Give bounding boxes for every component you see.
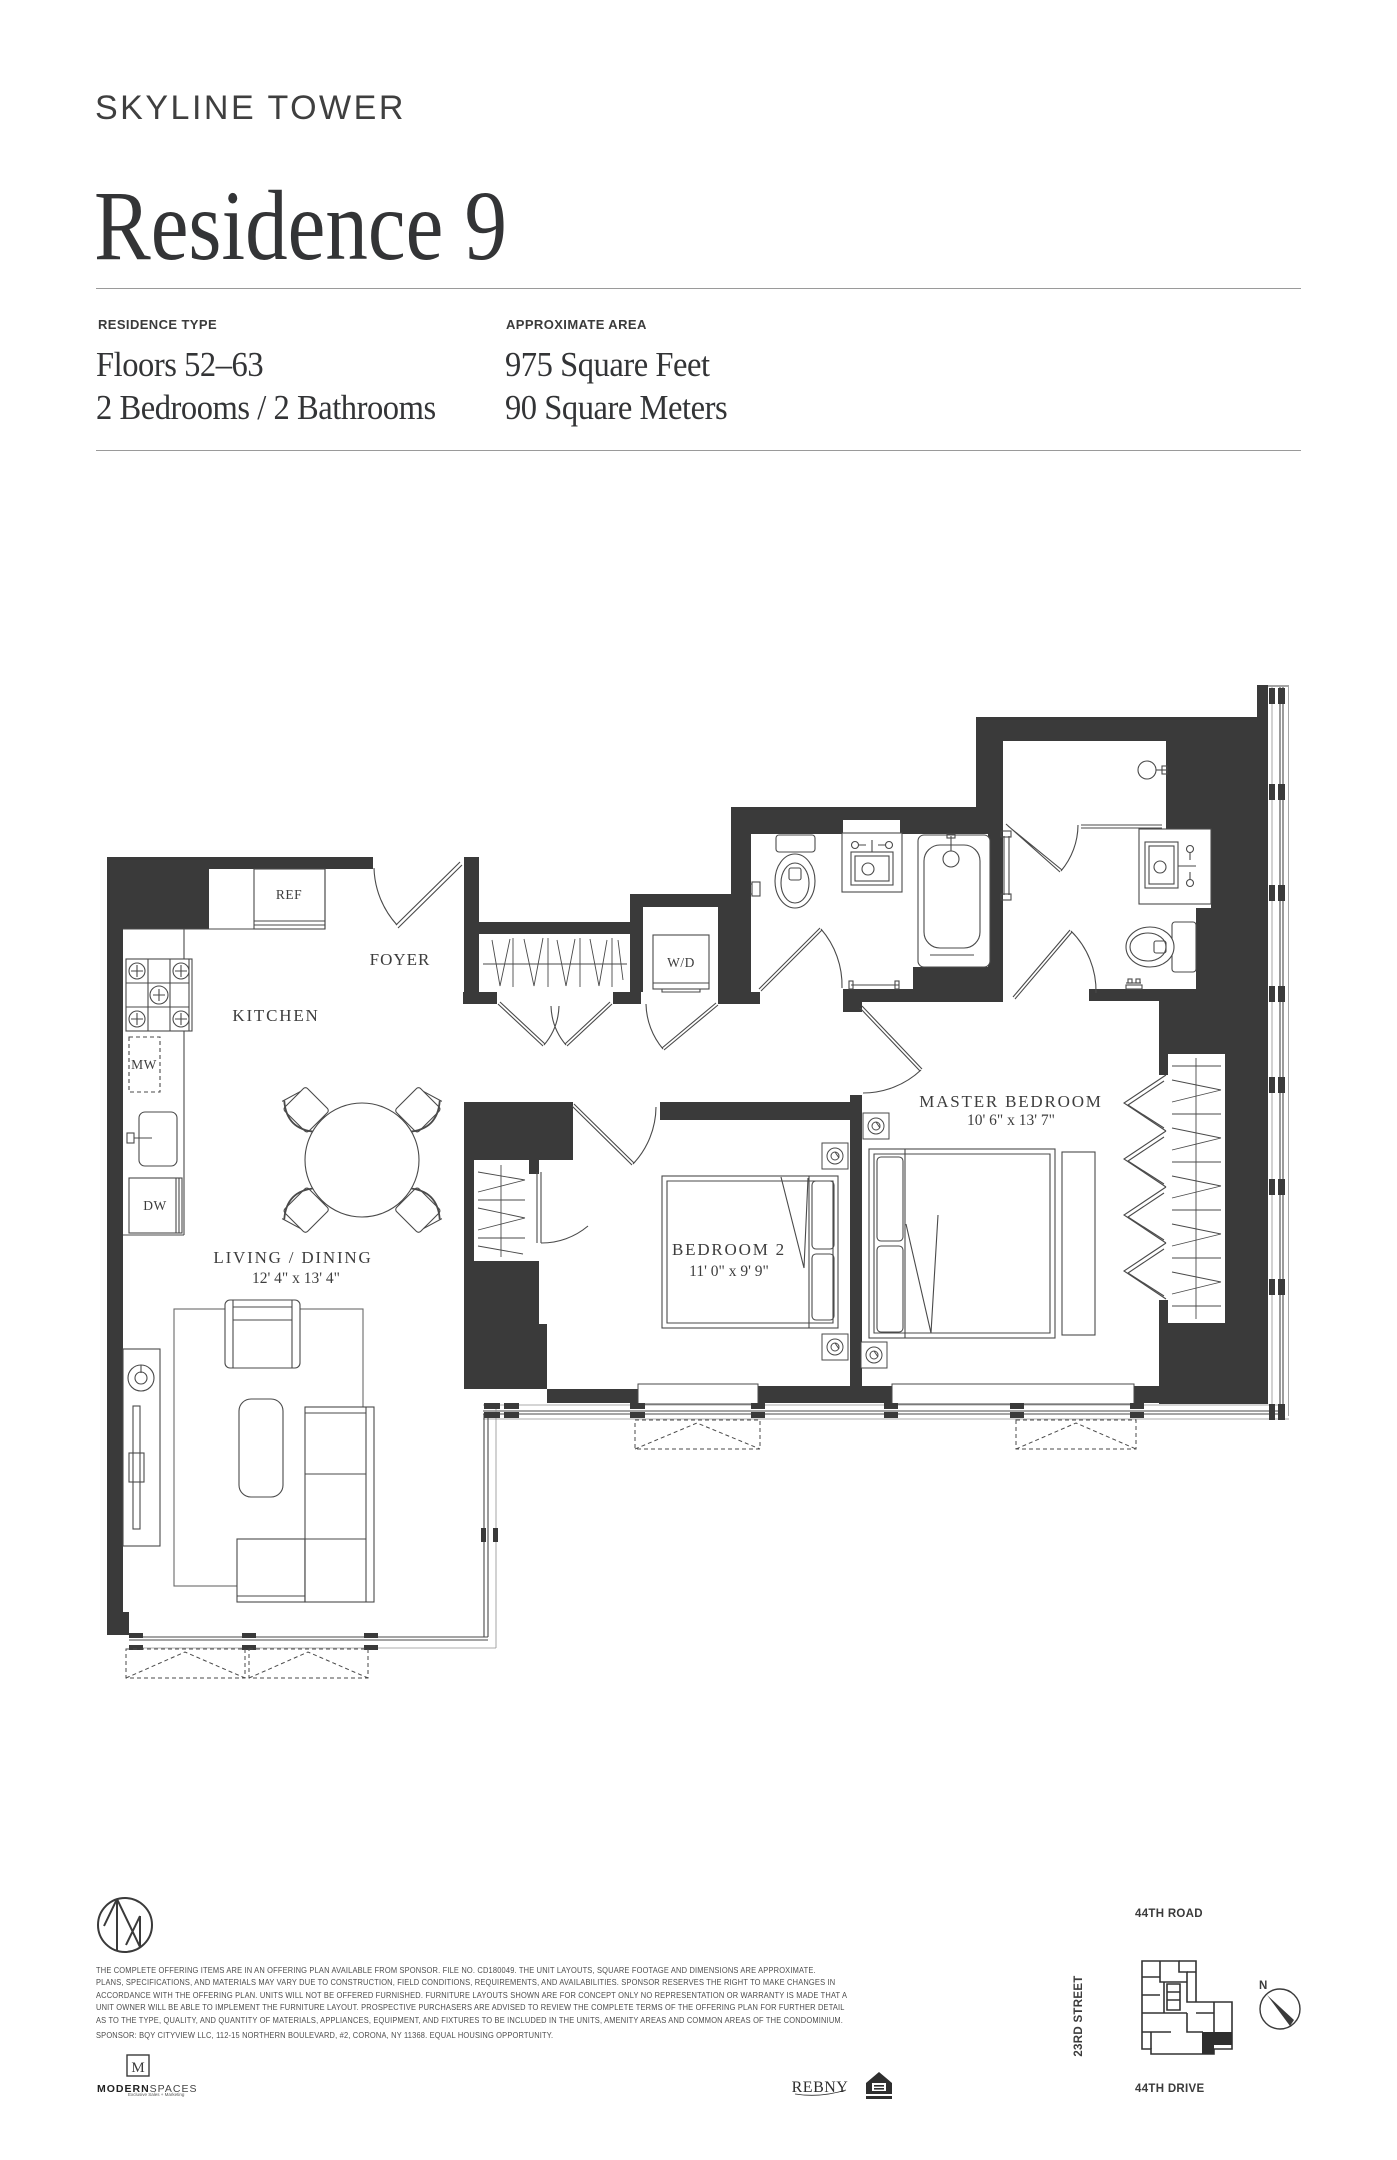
svg-text:BEDROOM 2: BEDROOM 2 [672,1240,786,1259]
svg-text:DW: DW [143,1198,167,1213]
svg-text:MW: MW [131,1057,157,1072]
svg-text:12' 4" x 13' 4": 12' 4" x 13' 4" [252,1270,340,1287]
svg-text:FOYER: FOYER [370,950,431,969]
svg-text:23RD STREET: 23RD STREET [1073,1975,1085,2056]
svg-text:LIVING / DINING: LIVING / DINING [213,1248,372,1267]
svg-text:MASTER BEDROOM: MASTER BEDROOM [919,1092,1102,1111]
svg-text:REBNY: REBNY [792,2079,849,2096]
svg-text:Exclusive Sales + Marketing: Exclusive Sales + Marketing [128,2092,185,2097]
svg-text:KITCHEN: KITCHEN [232,1006,319,1025]
svg-text:M: M [131,2060,144,2076]
svg-text:11' 0" x 9' 9": 11' 0" x 9' 9" [689,1263,769,1280]
svg-text:N: N [1259,1980,1267,1992]
svg-text:10' 6" x 13' 7": 10' 6" x 13' 7" [967,1112,1055,1129]
svg-text:REF: REF [276,887,302,902]
svg-text:W/D: W/D [667,955,695,970]
